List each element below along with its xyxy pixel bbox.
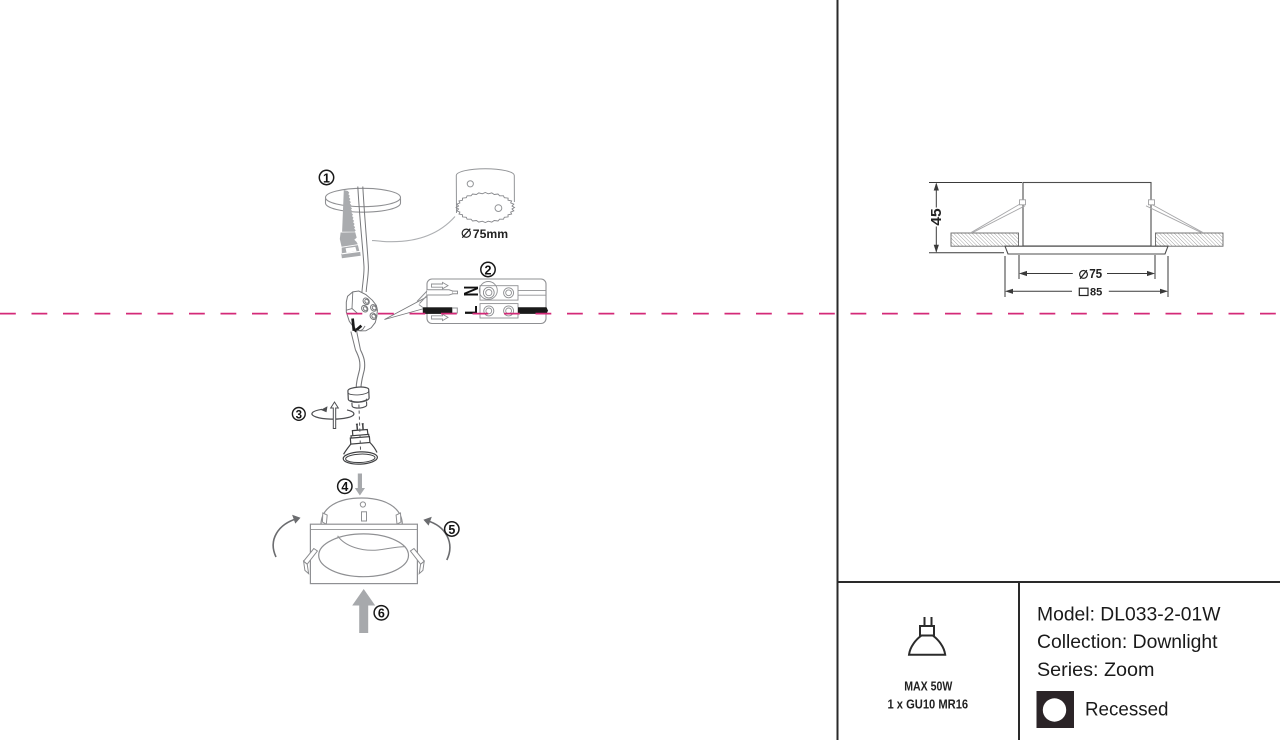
- svg-text:N: N: [460, 286, 483, 297]
- svg-text:85: 85: [1090, 286, 1102, 298]
- svg-text:MAX 50W: MAX 50W: [904, 679, 952, 693]
- svg-text:1 x GU10 MR16: 1 x GU10 MR16: [887, 698, 968, 712]
- svg-text:Model: DL033-2-01W: Model: DL033-2-01W: [1037, 603, 1221, 625]
- svg-text:6: 6: [378, 607, 385, 621]
- svg-text:75: 75: [1089, 266, 1102, 281]
- svg-text:75mm: 75mm: [473, 227, 508, 241]
- svg-text:Recessed: Recessed: [1085, 699, 1169, 721]
- svg-text:5: 5: [448, 523, 455, 537]
- svg-text:45: 45: [929, 208, 945, 225]
- svg-text:Series: Zoom: Series: Zoom: [1037, 659, 1155, 681]
- svg-text:1: 1: [323, 171, 330, 185]
- svg-text:2: 2: [485, 263, 492, 277]
- svg-text:3: 3: [296, 409, 302, 421]
- svg-text:Collection: Downlight: Collection: Downlight: [1037, 631, 1218, 653]
- svg-text:4: 4: [341, 480, 348, 494]
